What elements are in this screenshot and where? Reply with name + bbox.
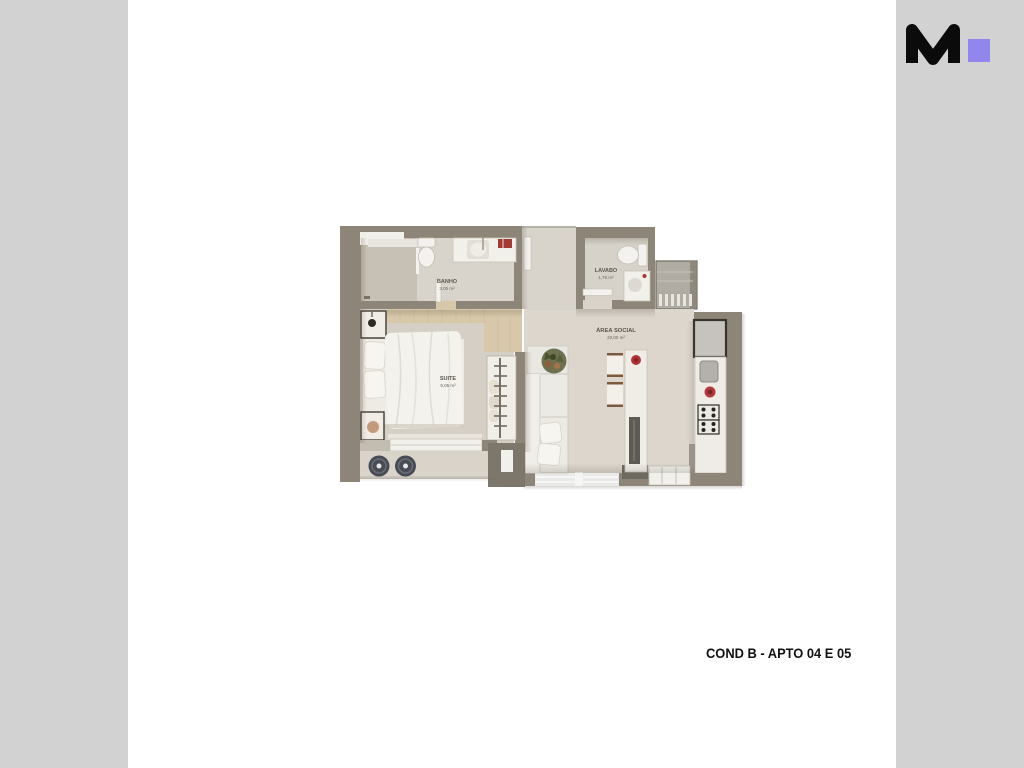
svg-text:9,05 m²: 9,05 m² <box>440 383 456 388</box>
svg-text:BANHO: BANHO <box>437 279 458 285</box>
svg-text:20,00 m²: 20,00 m² <box>607 335 625 340</box>
svg-text:SUITE: SUITE <box>440 376 457 382</box>
svg-text:3,05 m²: 3,05 m² <box>439 286 455 291</box>
svg-text:ÁREA SOCIAL: ÁREA SOCIAL <box>596 327 636 334</box>
svg-text:LAVABO: LAVABO <box>595 268 618 274</box>
svg-text:1,76 m²: 1,76 m² <box>598 275 614 280</box>
